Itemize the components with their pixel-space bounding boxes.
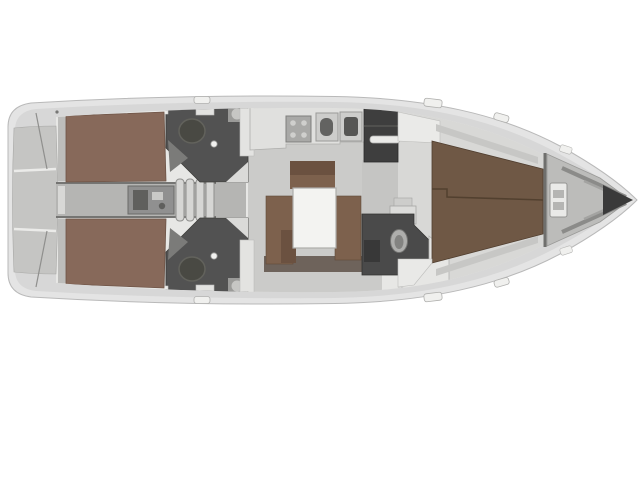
bench-backrest xyxy=(290,161,335,175)
step-tread xyxy=(176,179,184,221)
stove-burner xyxy=(301,120,307,126)
sink-bowl-square xyxy=(344,117,358,136)
toilet-port xyxy=(179,119,205,143)
stern-locker-area xyxy=(13,126,59,274)
towel-rail xyxy=(370,136,400,143)
interior-rooms xyxy=(56,101,545,299)
yacht-layout-plan xyxy=(0,0,640,480)
step-tread xyxy=(186,179,194,221)
corridor-end-strip xyxy=(58,186,65,214)
windlass xyxy=(550,183,567,217)
engine-part xyxy=(152,192,163,200)
shower-pole-starboard xyxy=(211,253,217,259)
windlass-detail-lower xyxy=(553,202,564,210)
engine-block xyxy=(133,190,148,210)
deck-hatch xyxy=(194,297,210,304)
forward-toilet-bowl xyxy=(395,235,404,249)
bulkhead-cabinet-lower xyxy=(240,240,254,298)
stern-fitting-dot xyxy=(55,110,58,113)
stove-burner xyxy=(290,132,296,138)
stern-lazarette xyxy=(13,110,59,287)
deck-hatch xyxy=(424,292,443,302)
shower-pole-port xyxy=(211,141,217,147)
sink-bowl-round xyxy=(320,118,333,136)
deck-hatch xyxy=(424,98,443,108)
settee-right xyxy=(335,196,361,260)
deck-hatch xyxy=(194,97,210,104)
galley-stove xyxy=(286,116,311,142)
step-tread xyxy=(196,179,204,221)
step-tread xyxy=(206,179,214,221)
engine-compartment xyxy=(56,183,246,217)
stove-burner xyxy=(301,132,307,138)
stove-burner xyxy=(290,120,296,126)
salon-table xyxy=(293,188,336,248)
aft-berth-port xyxy=(66,112,166,182)
bench-seat xyxy=(290,175,335,189)
toilet-starboard xyxy=(179,257,205,281)
aft-berth-starboard xyxy=(66,219,166,288)
boat-floorplan-canvas xyxy=(0,0,640,480)
forward-head-cabinet xyxy=(364,240,380,262)
windlass-detail-upper xyxy=(553,190,564,198)
engine-pulley xyxy=(159,203,165,209)
